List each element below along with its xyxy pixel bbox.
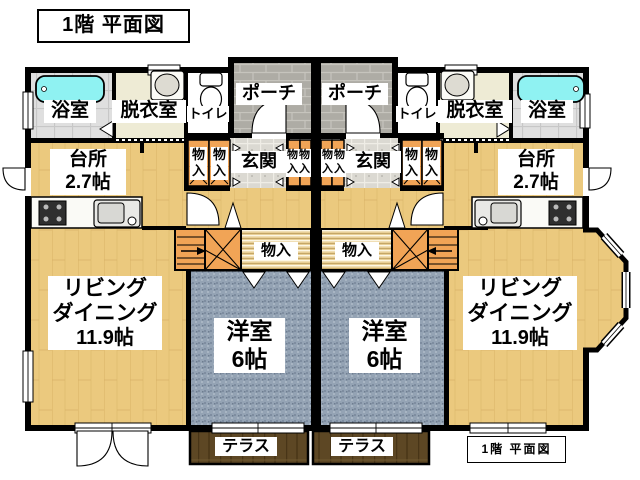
kitchen-size: 2.7帖: [50, 172, 126, 195]
living-line1: リビング: [463, 276, 577, 301]
label-porch-right: ポーチ: [322, 83, 388, 105]
label-storage: 物入: [190, 147, 207, 180]
kitchen-counter-left: [31, 197, 142, 228]
kitchen-left-door-arc: [3, 168, 25, 190]
stairs-right-icon: [392, 229, 458, 270]
label-western-left: 洋室 6帖: [214, 318, 285, 373]
kitchen-name: 台所: [50, 149, 126, 172]
label-terrace-left: テラス: [215, 437, 277, 456]
living-size: 11.9帖: [48, 326, 162, 350]
label-living-left: リビング ダイニング 11.9帖: [48, 276, 162, 350]
kitchen-sink-right-icon: [475, 200, 521, 227]
western-name: 洋室: [349, 318, 420, 346]
western-size: 6帖: [214, 346, 285, 374]
kitchen-counter-right: [472, 197, 583, 228]
living-line2: ダイニング: [463, 301, 577, 326]
western-name: 洋室: [214, 318, 285, 346]
label-bath-right: 浴室: [521, 100, 573, 123]
floor-plan-drawing: [0, 0, 640, 480]
label-living-right: リビング ダイニング 11.9帖: [463, 276, 577, 350]
label-western-right: 洋室 6帖: [349, 318, 420, 373]
stove-right-icon: [549, 201, 576, 225]
label-storage: 物入: [333, 149, 346, 177]
label-storage-stair-left: 物入: [254, 242, 298, 260]
label-storage: 物入: [423, 147, 440, 180]
sink-right-icon: [441, 71, 474, 100]
bathtub-left-icon: [36, 76, 104, 102]
label-dressing-left: 脱衣室: [112, 100, 186, 123]
label-toilet-right: トイレ: [396, 106, 438, 122]
kitchen-right-door-arc: [589, 168, 611, 190]
living-line1: リビング: [48, 276, 162, 301]
label-storage-stair-right: 物入: [335, 242, 379, 260]
label-kitchen-right: 台所 2.7帖: [498, 149, 574, 195]
living-size: 11.9帖: [463, 326, 577, 350]
label-bath-left: 浴室: [44, 100, 96, 123]
stairs-left-icon: [175, 229, 241, 270]
page-title: 1階 平面図: [37, 9, 190, 43]
living-left-french-door-b: [113, 431, 148, 466]
label-kitchen-left: 台所 2.7帖: [50, 149, 126, 195]
western-size: 6帖: [349, 346, 420, 374]
floor-plan: 1階 平面図 浴室 脱衣室 トイレ ポーチ ポーチ トイレ 脱衣室 浴室 台所 …: [0, 0, 640, 480]
label-storage: 物入: [403, 147, 420, 180]
sink-left-icon: [151, 71, 184, 100]
bathtub-right-icon: [518, 76, 584, 102]
kitchen-sink-left-icon: [94, 200, 140, 227]
label-entrance-right: 玄関: [345, 151, 401, 173]
label-storage: 物入: [211, 147, 228, 180]
label-terrace-right: テラス: [331, 437, 393, 456]
kitchen-size: 2.7帖: [498, 172, 574, 195]
living-line2: ダイニング: [48, 301, 162, 326]
stove-left-icon: [39, 201, 66, 225]
label-dressing-right: 脱衣室: [438, 100, 512, 123]
living-left-french-door-a: [77, 431, 112, 466]
label-storage: 物入: [298, 149, 311, 177]
footer-caption: 1階 平面図: [467, 436, 566, 463]
party-wall: [311, 57, 321, 430]
label-toilet-left: トイレ: [187, 106, 229, 122]
label-entrance-left: 玄関: [231, 151, 287, 173]
kitchen-name: 台所: [498, 149, 574, 172]
label-porch-left: ポーチ: [236, 83, 302, 105]
